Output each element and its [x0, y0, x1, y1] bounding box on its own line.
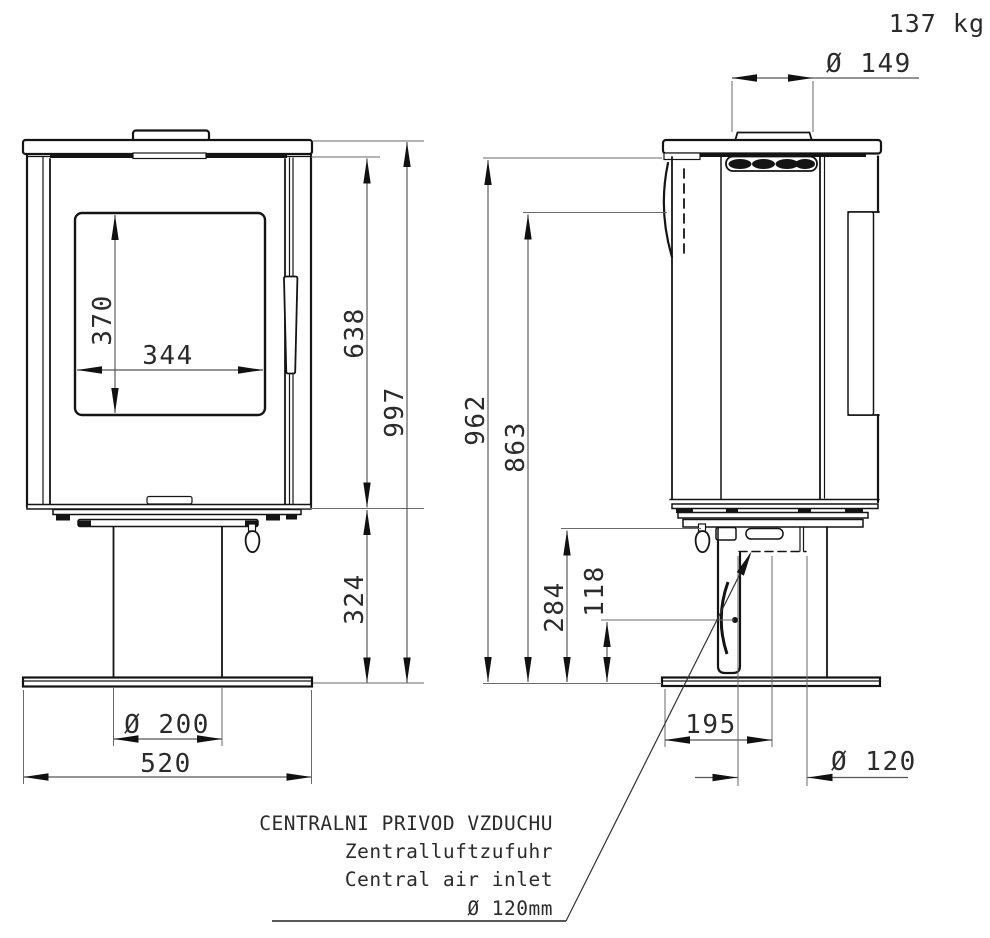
foot-right-outer [286, 514, 297, 520]
louvre-slat [795, 159, 815, 169]
dim-label-inlet-diameter: Ø 120 [831, 747, 917, 777]
note-line-german: Zentralluftzufuhr [345, 840, 553, 863]
dim-pedestal-height: 324 [340, 510, 370, 683]
bottom-band2-side [683, 520, 863, 528]
air-knob-side [696, 531, 710, 552]
air-knob-stem-side [699, 524, 706, 531]
front-trim-block [664, 153, 700, 160]
dim-label-inlet-offset: 195 [685, 710, 736, 740]
weight-label: 137 kg [889, 9, 985, 38]
bottom-band-side [672, 504, 878, 509]
front-view [23, 131, 312, 687]
dim-label-base-width: 520 [140, 749, 191, 779]
louvre-slat [729, 159, 752, 169]
rear-heat-shield [848, 212, 874, 415]
door-handle-grip [284, 277, 297, 374]
bottom-plate-front [53, 510, 301, 515]
base-plate-front [23, 678, 312, 687]
dim-label-height-284: 284 [540, 581, 570, 632]
dim-height-284: 284 [540, 529, 701, 683]
dim-label-glass-height: 370 [88, 294, 118, 345]
dim-label-firebox-height: 638 [340, 307, 370, 358]
louvre-slat [752, 159, 775, 169]
note-line-diameter: Ø 120mm [467, 897, 553, 920]
note-line-english: Central air inlet [345, 868, 553, 891]
dim-label-glass-width: 344 [142, 341, 193, 371]
ash-lip [78, 520, 258, 527]
dim-column-diameter: Ø 200 [114, 688, 223, 746]
bottom-plate-side [678, 513, 868, 519]
dim-glass-height: 370 [88, 215, 118, 413]
dim-flue-diameter: Ø 149 [732, 49, 919, 132]
foot-right [266, 515, 280, 521]
dim-label-pedestal-height: 324 [340, 573, 370, 624]
top-plate-side [663, 140, 881, 154]
dim-label-flue-diameter: Ø 149 [826, 49, 912, 79]
dim-height-118: 118 [580, 565, 734, 682]
underside-bracket [716, 528, 736, 541]
dim-label-height-962: 962 [461, 394, 491, 445]
stove-technical-drawing: 370 344 638 324 997 Ø 200 [0, 0, 990, 938]
base-plate-side [662, 678, 880, 687]
foot-left [56, 515, 70, 521]
dim-label-column-diameter: Ø 200 [124, 710, 210, 740]
note-line-czech: CENTRALNI PRIVOD VZDUCHU [259, 812, 553, 835]
dim-label-total-height: 997 [380, 386, 410, 437]
body-bottom-edge [27, 505, 311, 510]
technical-drawing-page: 370 344 638 324 997 Ø 200 [0, 0, 990, 938]
door-latch-tab [147, 497, 192, 505]
top-vent-slot [133, 153, 206, 159]
air-knob-front [246, 531, 260, 552]
dim-label-height-118: 118 [580, 565, 610, 616]
air-inlet-note: CENTRALNI PRIVOD VZDUCHU Zentralluftzufu… [259, 552, 751, 922]
door-curve-side [664, 163, 672, 257]
top-plate-front [23, 140, 312, 154]
dim-label-height-863: 863 [501, 421, 531, 472]
air-knob-stem-front [249, 524, 256, 531]
ash-lip-end-left [78, 521, 91, 527]
underside-slot [746, 529, 783, 540]
